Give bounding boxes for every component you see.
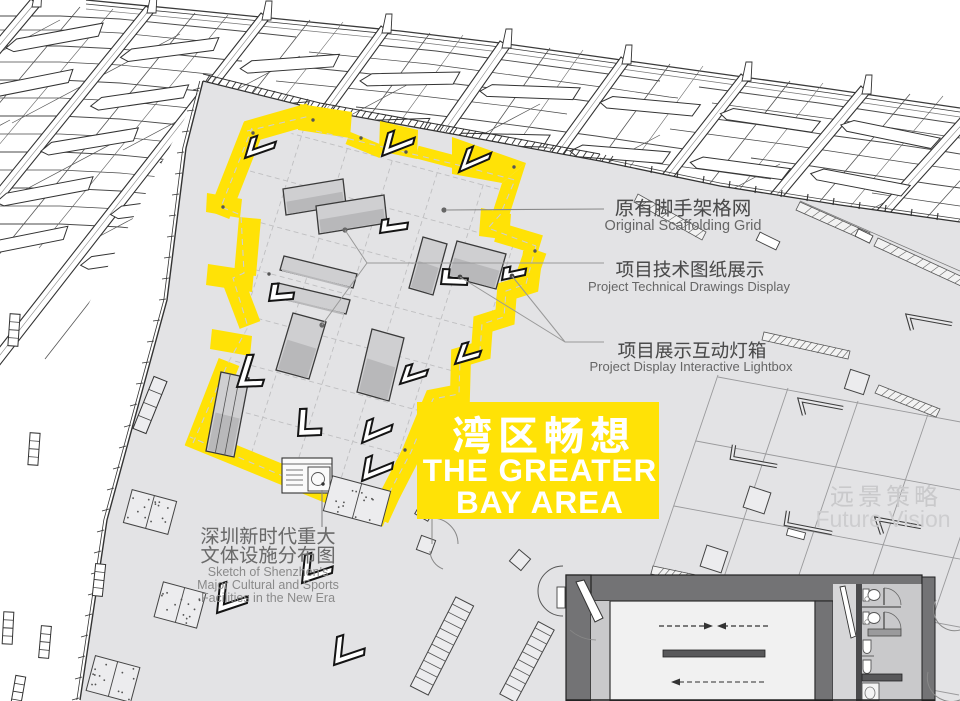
svg-text:Future Vision: Future Vision <box>815 506 950 532</box>
svg-text:Project Technical Drawings Dis: Project Technical Drawings Display <box>588 279 791 294</box>
svg-text:Major Cultural and Sports: Major Cultural and Sports <box>197 578 339 592</box>
svg-text:BAY AREA: BAY AREA <box>456 484 624 520</box>
svg-text:Facilities in the New Era: Facilities in the New Era <box>201 591 335 605</box>
svg-text:Original Scaffolding Grid: Original Scaffolding Grid <box>605 218 762 234</box>
svg-text:Project Display Interactive Li: Project Display Interactive Lightbox <box>589 359 793 374</box>
svg-text:THE GREATER: THE GREATER <box>423 452 657 488</box>
svg-text:Sketch of Shenzhen's: Sketch of Shenzhen's <box>208 565 329 579</box>
